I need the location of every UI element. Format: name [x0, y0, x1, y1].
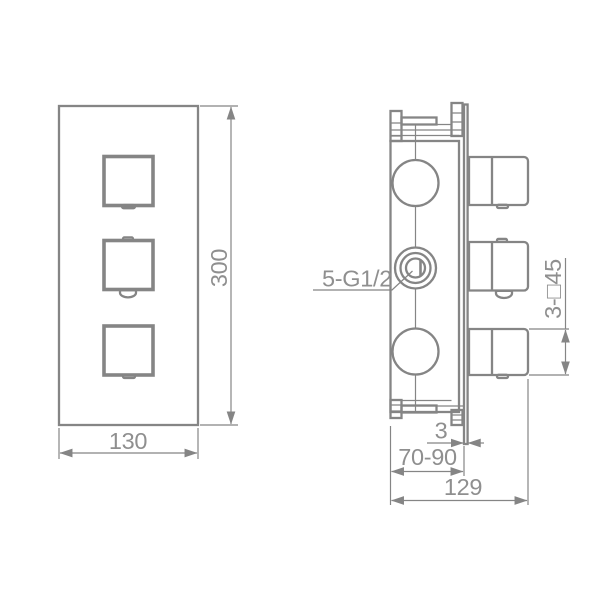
front-knob-top	[104, 157, 153, 206]
dim-front-width: 130	[59, 428, 198, 459]
handle-bottom	[469, 329, 528, 378]
port-middle-threaded	[395, 248, 436, 289]
dim-front-height: 300	[200, 106, 238, 425]
port-top-circle	[393, 160, 439, 206]
port-bottom-circle	[393, 329, 439, 375]
leader-ports-label: 5-G1/2	[322, 266, 392, 292]
dim-handle-size-label: 3-□45	[540, 259, 566, 319]
dim-plate-thickness-label: 3	[435, 418, 448, 444]
dim-front-height-label: 300	[206, 249, 232, 288]
dim-handle-size: 3-□45	[529, 258, 569, 375]
front-knob-middle-cup	[120, 290, 136, 297]
front-knob-bottom	[104, 326, 153, 375]
technical-drawing: 130 300	[0, 0, 600, 600]
drawing-canvas: 130 300	[0, 0, 600, 600]
wall-plate	[464, 105, 468, 445]
handle-top	[469, 157, 528, 208]
dim-embed-depth-label: 70-90	[398, 444, 457, 470]
front-knob-middle	[104, 241, 153, 290]
dim-overall-depth-label: 129	[444, 474, 482, 500]
side-view: 5-G1/2 3-□45 3 70-90 129	[313, 103, 569, 505]
handle-middle	[469, 239, 528, 298]
top-bracket	[391, 103, 465, 141]
dim-front-width-label: 130	[109, 428, 148, 454]
dim-plate-thickness: 3	[427, 418, 484, 444]
front-view: 130 300	[59, 106, 238, 459]
